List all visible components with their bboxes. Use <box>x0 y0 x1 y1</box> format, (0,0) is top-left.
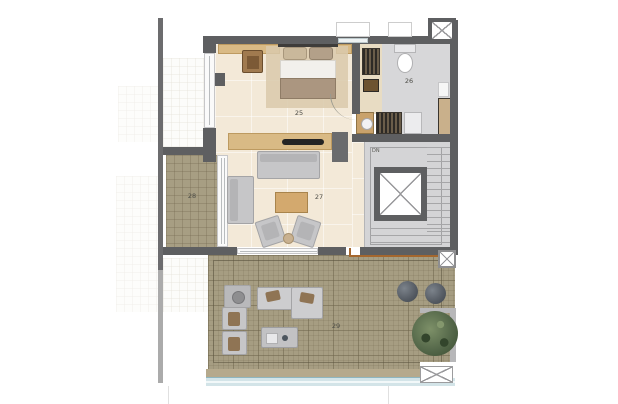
door-glass-line <box>240 251 317 252</box>
outdoor-pouf <box>425 283 446 304</box>
top-wall <box>203 36 458 44</box>
window-glass-line <box>209 56 210 125</box>
table-tray <box>266 333 278 344</box>
bath-shelf-items <box>376 112 402 134</box>
toilet-tank <box>394 44 416 53</box>
terrace-edge <box>206 369 455 377</box>
door-glass-line <box>221 158 222 244</box>
terrace-glass-railing <box>206 377 455 386</box>
outdoor-pouf <box>397 281 418 302</box>
door-glass-line <box>224 158 225 244</box>
room-label-living: 27 <box>311 193 327 202</box>
tv-wall-stub <box>332 132 348 162</box>
room-label-balcony: 28 <box>184 192 200 201</box>
room-label-terrace: 29 <box>328 322 344 331</box>
exterior-texture <box>116 176 162 312</box>
hanging-clothes <box>362 48 380 75</box>
dimension-line <box>168 386 169 404</box>
closet-partition <box>352 44 360 114</box>
closet-drawer <box>363 79 379 92</box>
terrace-sliding-door <box>237 248 318 254</box>
bath-vanity <box>356 112 374 134</box>
bed-blanket <box>280 78 336 99</box>
armchair-seat <box>247 56 259 69</box>
window-sill <box>338 38 368 43</box>
west-wall-stub <box>203 36 216 53</box>
left-boundary-wall-light <box>158 270 163 383</box>
boundary-line <box>349 248 351 257</box>
railing-line <box>206 381 455 383</box>
armchair-seat <box>296 221 315 241</box>
room-label-bathroom: 26 <box>401 77 417 86</box>
chair-cushion <box>228 337 240 351</box>
dimension-line <box>388 386 389 404</box>
elevator-shaft-x-icon <box>374 167 427 221</box>
exterior-texture <box>118 86 160 142</box>
sofa <box>257 151 320 179</box>
exterior-window-box <box>336 22 370 37</box>
sink <box>361 118 373 130</box>
sofa-cushion <box>299 292 315 304</box>
duct-shaft-x-icon <box>428 18 456 43</box>
terrace-inner-outline <box>213 260 442 363</box>
window-mullion <box>215 73 225 86</box>
side-pouf <box>283 233 294 244</box>
room-label-bedroom: 25 <box>291 109 307 118</box>
exterior-window-box <box>388 22 412 37</box>
terrace-shaft-x-icon <box>438 250 456 268</box>
bed-pillow <box>283 47 307 60</box>
shower-control-panel <box>438 82 449 97</box>
left-boundary-wall <box>158 18 163 270</box>
planter-tree <box>412 311 458 356</box>
sofa-back <box>260 154 317 162</box>
shower-tray <box>404 112 422 134</box>
armchair-seat <box>261 221 280 241</box>
bathroom-bottom-wall <box>352 134 458 142</box>
living-bottom-wall <box>318 247 346 255</box>
living-stair-divider <box>364 142 365 247</box>
bed-sheet <box>280 60 336 79</box>
lounge-chair <box>222 307 247 330</box>
sofa-cushion <box>265 290 281 303</box>
outdoor-coffee-table <box>261 327 298 348</box>
loveseat-back <box>230 179 238 221</box>
bed-pillow <box>309 47 333 60</box>
tv <box>282 139 324 145</box>
skylight-x-icon <box>420 366 453 383</box>
west-wall-stub <box>203 128 216 162</box>
stairs-down-label: DN <box>372 148 380 154</box>
outdoor-sofa-chaise <box>291 287 323 319</box>
bedroom-armchair <box>242 50 263 73</box>
lounge-chair <box>222 331 247 355</box>
toilet-bowl <box>397 53 413 73</box>
fire-pit-table <box>224 285 251 308</box>
coffee-table <box>275 192 308 213</box>
stair-treads <box>427 147 451 233</box>
floor-plan-canvas: 25 26 27 28 29 DN <box>0 0 618 404</box>
living-bottom-wall <box>203 247 237 255</box>
bedroom-window <box>204 53 215 128</box>
chair-cushion <box>228 312 240 326</box>
fire-pit-burner <box>232 291 245 304</box>
loveseat <box>227 176 254 224</box>
table-decor <box>282 335 288 341</box>
